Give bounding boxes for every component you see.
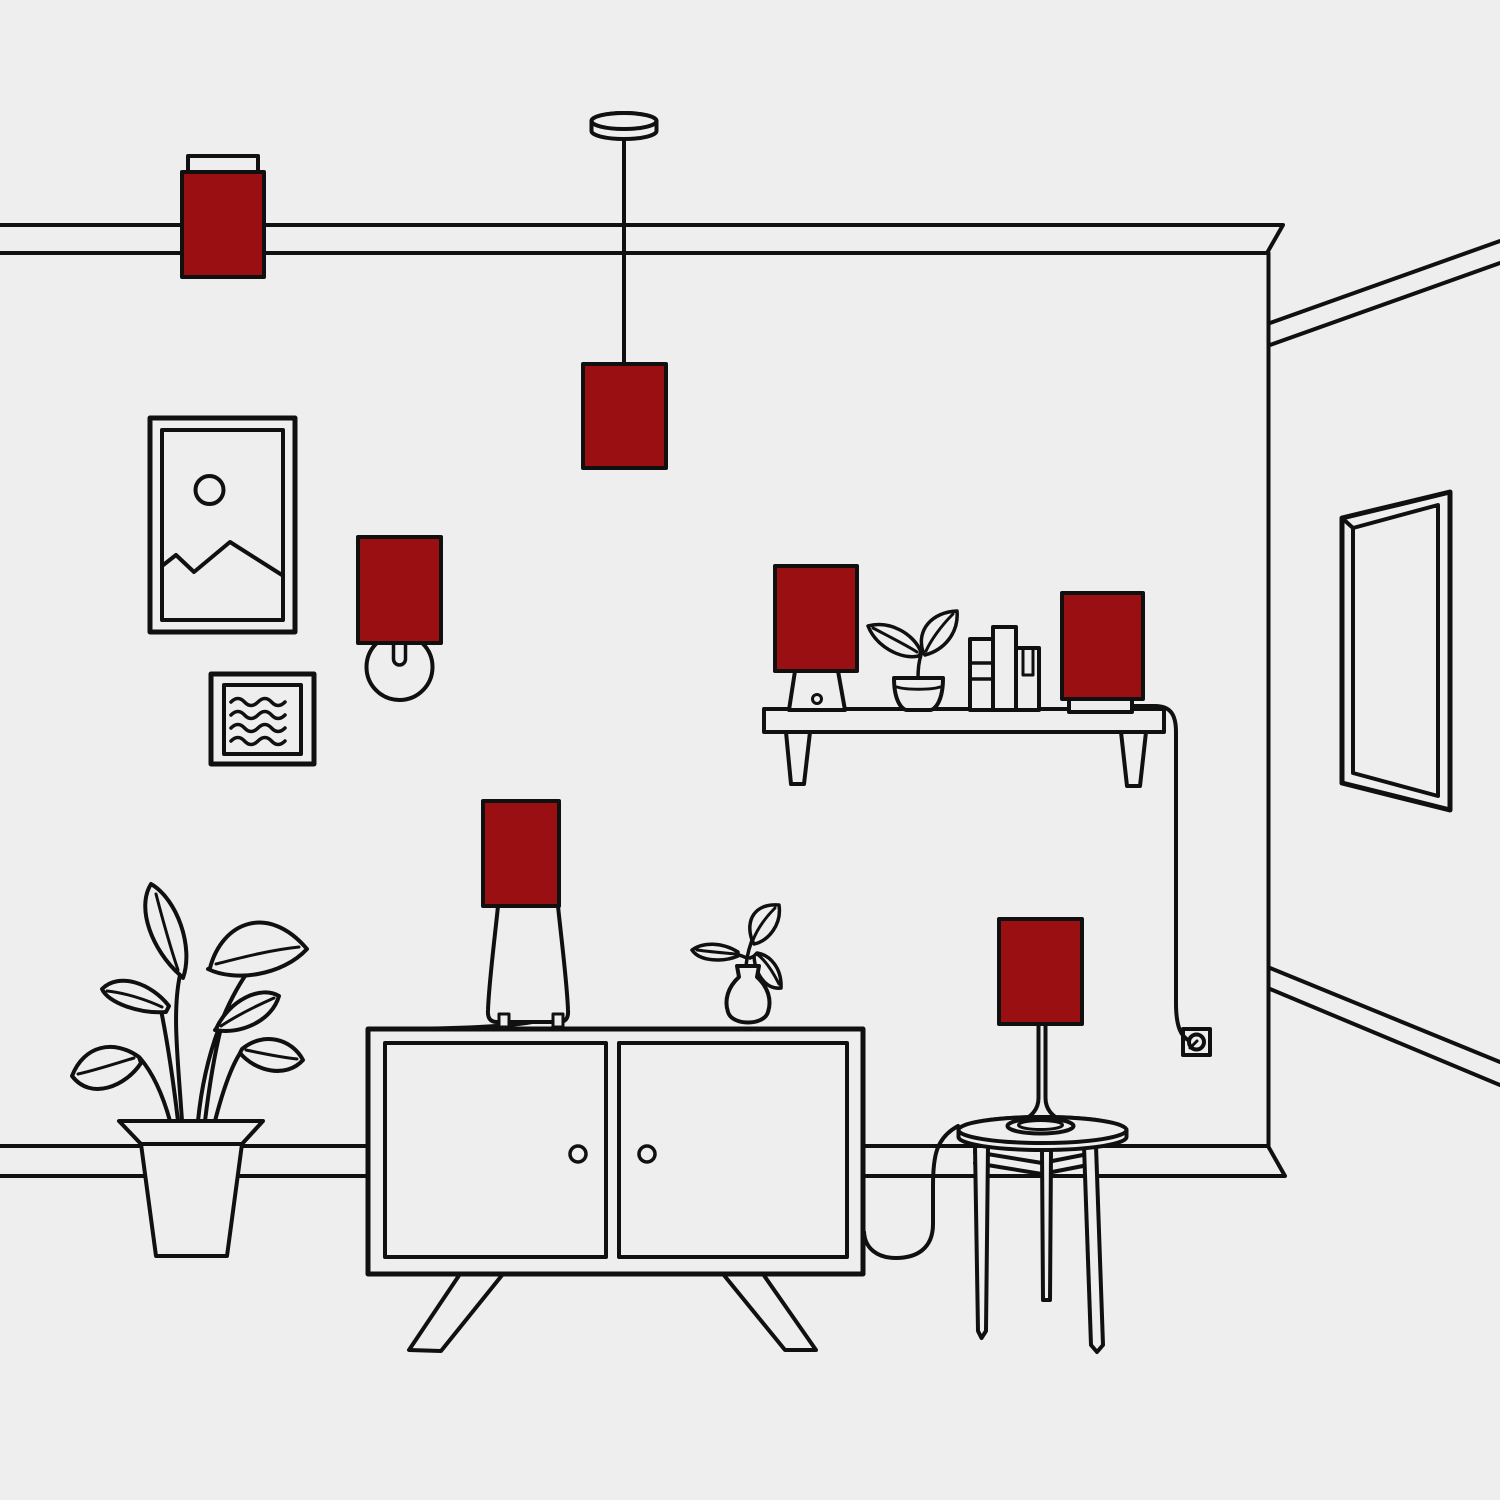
mirror-outer-frame xyxy=(1342,492,1450,810)
shelf-right-lamp-shade[interactable] xyxy=(1062,593,1143,699)
wall-mirror xyxy=(1342,492,1450,810)
flush-mount-ceiling-lamp[interactable] xyxy=(182,156,264,277)
sideboard-lamp-shade[interactable] xyxy=(483,801,559,906)
book xyxy=(993,627,1016,710)
shelf-leg-left xyxy=(786,732,810,784)
sconce-lamp-shade[interactable] xyxy=(358,537,441,643)
frame-outer xyxy=(211,674,314,764)
shelf-leg-right xyxy=(1121,732,1146,786)
shelf-left-lamp-shade[interactable] xyxy=(775,566,857,671)
lamp-body xyxy=(488,906,568,1022)
table-lamp-on-sideboard[interactable] xyxy=(483,801,568,1027)
table-leg-left xyxy=(975,1146,988,1338)
picture-frame-mountain xyxy=(150,418,295,632)
wall-sconce-lamp[interactable] xyxy=(358,537,441,700)
lamp-foot xyxy=(553,1014,563,1027)
room-illustration xyxy=(0,0,1500,1500)
plant-pot-rim xyxy=(119,1121,263,1144)
book xyxy=(970,639,993,710)
plant-pot-body xyxy=(141,1144,242,1256)
slim-lamp-shade[interactable] xyxy=(999,919,1082,1024)
picture-frame-abstract xyxy=(211,674,314,764)
lamp-foot xyxy=(499,1014,509,1027)
sideboard-body xyxy=(368,1029,863,1274)
frame-outer xyxy=(150,418,295,632)
book xyxy=(1016,648,1039,710)
plant-pot xyxy=(894,678,943,710)
flush-mount-lamp-shade[interactable] xyxy=(182,172,264,277)
illustration-stage xyxy=(0,0,1500,1500)
ceiling-rose-top xyxy=(592,113,657,129)
pendant-lamp-shade[interactable] xyxy=(583,364,666,468)
table-leg-middle xyxy=(1042,1150,1051,1300)
